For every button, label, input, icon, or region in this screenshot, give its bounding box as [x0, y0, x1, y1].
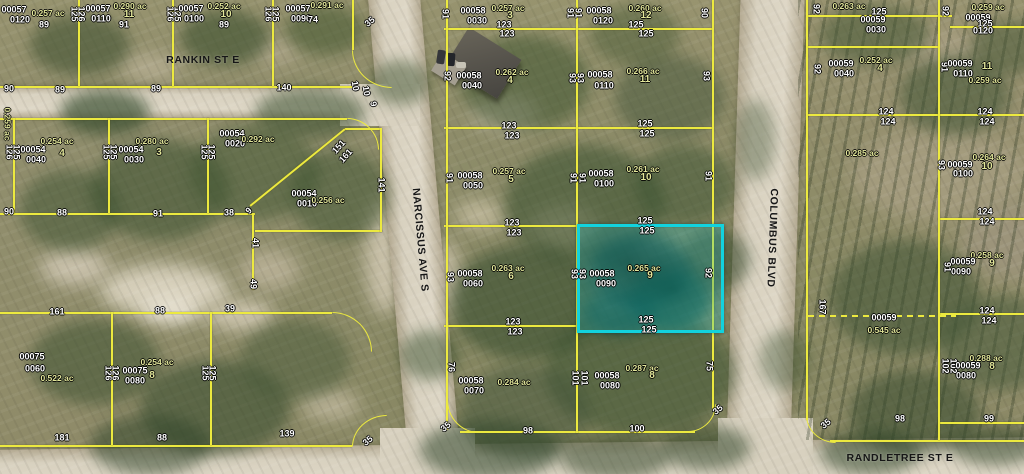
map-labels-layer: 0005701200.257 ac891251260005701100.290 … — [0, 0, 1024, 474]
parcel-id-label: 00058 — [587, 71, 612, 80]
parcel-dimension-label: 124 — [979, 118, 994, 127]
parcel-dimension-label: 9 — [244, 206, 254, 216]
parcel-dimension-label: 167 — [818, 299, 827, 314]
parcel-acreage-label: 0.252 ac — [859, 56, 892, 65]
parcel-acreage-label: 0.259 ac — [3, 107, 12, 140]
parcel-dimension-label: 74 — [308, 16, 318, 25]
street-name-label: NARCISSUS AVE S — [410, 188, 430, 293]
parcel-dimension-label: 92 — [704, 268, 713, 278]
parcel-dimension-label: 124 — [878, 108, 893, 117]
parcel-id-label: 00058 — [588, 170, 613, 179]
parcel-id-label: 00059 — [828, 60, 853, 69]
parcel-dimension-label: 101 — [580, 370, 589, 385]
parcel-id-label: 0030 — [124, 156, 144, 165]
street-name-label: RANKIN ST E — [166, 55, 240, 66]
parcel-id-label: 0080 — [956, 372, 976, 381]
parcel-dimension-label: 93 — [446, 272, 455, 282]
parcel-id-label: 00057 — [178, 5, 203, 14]
parcel-id-label: 0090 — [951, 268, 971, 277]
parcel-acreage-label: 0.256 ac — [311, 196, 344, 205]
parcel-id-label: 00054 — [20, 146, 45, 155]
parcel-acreage-label: 0.522 ac — [40, 374, 73, 383]
parcel-dimension-label: 141 — [377, 177, 386, 192]
parcel-dimension-label: 124 — [981, 317, 996, 326]
parcel-dimension-label: 125 — [639, 130, 654, 139]
parcel-dimension-label: 123 — [501, 122, 516, 131]
lot-number-label: 11 — [982, 62, 993, 72]
lot-number-label: 8 — [149, 371, 155, 381]
parcel-id-label: 0080 — [600, 382, 620, 391]
parcel-dimension-label: 181 — [54, 434, 69, 443]
parcel-id-label: 00058 — [456, 72, 481, 81]
parcel-acreage-label: 0.259 ac — [971, 3, 1004, 12]
parcel-dimension-label: 41 — [251, 238, 260, 248]
parcel-dimension-label: 38 — [224, 209, 234, 218]
parcel-id-label: 00058 — [460, 7, 485, 16]
parcel-dimension-label: 125 — [271, 6, 280, 21]
parcel-dimension-label: 124 — [880, 118, 895, 127]
parcel-dimension-label: 101 — [571, 370, 580, 385]
parcel-dimension-label: 90 — [4, 85, 14, 94]
parcel-dimension-label: 125 — [638, 316, 653, 325]
parcel-dimension-label: 139 — [279, 430, 294, 439]
parcel-id-label: 0110 — [594, 82, 614, 91]
parcel-dimension-label: 89 — [219, 21, 229, 30]
parcel-dimension-label: 125 — [638, 30, 653, 39]
parcel-acreage-label: 0.264 ac — [972, 153, 1005, 162]
parcel-acreage-label: 0.284 ac — [497, 378, 530, 387]
parcel-id-label: 0100 — [953, 170, 973, 179]
parcel-id-label: 00058 — [457, 270, 482, 279]
parcel-dimension-label: 9 — [368, 101, 378, 108]
lot-number-label: 10 — [640, 173, 651, 183]
parcel-id-label: 0120 — [593, 17, 613, 26]
parcel-id-label: 0100 — [184, 15, 204, 24]
parcel-dimension-label: 90 — [4, 208, 14, 217]
parcel-id-label: 00057 — [285, 5, 310, 14]
parcel-map[interactable]: 0005701200.257 ac891251260005701100.290 … — [0, 0, 1024, 474]
parcel-dimension-label: 91 — [704, 171, 713, 181]
lot-number-label: 11 — [640, 75, 651, 85]
parcel-id-label: 00075 — [122, 367, 147, 376]
parcel-acreage-label: 0.257 ac — [31, 9, 64, 18]
parcel-dimension-label: 90 — [700, 8, 709, 18]
lot-number-label: 10 — [981, 162, 992, 172]
parcel-id-label: 00057 — [1, 6, 26, 15]
parcel-acreage-label: 0.259 ac — [968, 76, 1001, 85]
parcel-id-label: 0060 — [463, 280, 483, 289]
parcel-dimension-label: 10 — [361, 85, 372, 96]
parcel-dimension-label: 98 — [523, 427, 533, 436]
parcel-dimension-label: 10 — [350, 80, 361, 91]
parcel-acreage-label: 0.254 ac — [40, 137, 73, 146]
parcel-dimension-label: 125 — [208, 365, 217, 380]
parcel-acreage-label: 0.285 ac — [845, 149, 878, 158]
parcel-id-label: 0030 — [467, 17, 487, 26]
lot-number-label: 9 — [989, 259, 995, 269]
parcel-dimension-label: 123 — [499, 30, 514, 39]
street-name-label: COLUMBUS BLVD — [765, 188, 779, 287]
parcel-dimension-label: 125 — [637, 217, 652, 226]
parcel-dimension-label: 93 — [578, 269, 587, 279]
lot-number-label: 5 — [508, 175, 514, 185]
parcel-id-label: 00058 — [594, 372, 619, 381]
parcel-dimension-label: 126 — [111, 365, 120, 380]
parcel-dimension-label: 123 — [506, 229, 521, 238]
parcel-dimension-label: 92 — [812, 4, 821, 14]
lot-number-label: 6 — [508, 272, 514, 282]
parcel-dimension-label: 91 — [578, 173, 587, 183]
parcel-dimension-label: 124 — [979, 307, 994, 316]
parcel-dimension-label: 39 — [225, 305, 235, 314]
parcel-dimension-label: 88 — [155, 307, 165, 316]
parcel-dimension-label: 92 — [813, 64, 822, 74]
parcel-id-label: 0050 — [463, 182, 483, 191]
parcel-dimension-label: 98 — [895, 415, 905, 424]
parcel-acreage-label: 0.265 ac — [627, 264, 660, 273]
parcel-dimension-label: 123 — [505, 318, 520, 327]
parcel-dimension-label: 91 — [569, 173, 578, 183]
parcel-dimension-label: 124 — [977, 208, 992, 217]
parcel-dimension-label: 93 — [937, 160, 946, 170]
parcel-id-label: 0030 — [866, 26, 886, 35]
parcel-id-label: 0110 — [91, 15, 111, 24]
parcel-dimension-label: 92 — [941, 6, 950, 16]
parcel-dimension-label: 125 — [109, 144, 118, 159]
parcel-id-label: 0100 — [594, 180, 614, 189]
lot-number-label: 10 — [220, 10, 231, 20]
parcel-dimension-label: 93 — [702, 71, 711, 81]
parcel-dimension-label: 140 — [276, 84, 291, 93]
parcel-dimension-label: 91 — [943, 262, 952, 272]
parcel-id-label: 0040 — [26, 156, 46, 165]
lot-number-label: 9 — [647, 271, 653, 281]
lot-number-label: 8 — [649, 371, 655, 381]
parcel-dimension-label: 124 — [977, 108, 992, 117]
parcel-dimension-label: 92 — [443, 71, 452, 81]
parcel-id-label: 00058 — [457, 172, 482, 181]
street-name-label: RANDLETREE ST E — [846, 453, 953, 464]
parcel-dimension-label: 89 — [55, 86, 65, 95]
lot-number-label: 4 — [59, 149, 65, 159]
parcel-dimension-label: 126 — [77, 6, 86, 21]
lot-number-label: 11 — [124, 10, 135, 20]
parcel-id-label: 00058 — [589, 270, 614, 279]
parcel-id-label: 00057 — [85, 5, 110, 14]
parcel-dimension-label: 93 — [576, 73, 585, 83]
parcel-dimension-label: 125 — [12, 144, 21, 159]
parcel-id-label: 00059 — [947, 60, 972, 69]
parcel-dimension-label: 35 — [439, 420, 452, 433]
parcel-acreage-label: 0.280 ac — [135, 137, 168, 146]
parcel-id-label: 00059 — [955, 362, 980, 371]
parcel-dimension-label: 124 — [979, 218, 994, 227]
parcel-id-label: 0080 — [125, 377, 145, 386]
parcel-dimension-label: 91 — [153, 210, 163, 219]
parcel-dimension-label: 99 — [984, 415, 994, 424]
parcel-dimension-label: 125 — [207, 144, 216, 159]
parcel-dimension-label: 35 — [819, 417, 832, 430]
parcel-id-label: 0090 — [596, 280, 616, 289]
parcel-id-label: 0040 — [462, 82, 482, 91]
parcel-dimension-label: 88 — [157, 434, 167, 443]
parcel-dimension-label: 123 — [507, 328, 522, 337]
lot-number-label: 8 — [989, 362, 995, 372]
parcel-id-label: 00058 — [458, 377, 483, 386]
parcel-dimension-label: 35 — [711, 403, 724, 416]
parcel-acreage-label: 0.292 ac — [241, 135, 274, 144]
parcel-id-label: 0070 — [464, 387, 484, 396]
parcel-dimension-label: 89 — [39, 21, 49, 30]
parcel-dimension-label: 76 — [447, 362, 456, 372]
parcel-dimension-label: 91 — [441, 9, 450, 19]
lot-number-label: 4 — [507, 76, 513, 86]
parcel-dimension-label: 75 — [705, 361, 714, 371]
parcel-id-label: 00054 — [118, 146, 143, 155]
lot-number-label: 4 — [877, 64, 883, 74]
parcel-dimension-label: 123 — [504, 132, 519, 141]
parcel-acreage-label: 0.263 ac — [832, 2, 865, 11]
parcel-dimension-label: 91 — [445, 173, 454, 183]
parcel-dimension-label: 35 — [363, 15, 376, 28]
parcel-dimension-label: 91 — [119, 21, 129, 30]
lot-number-label: 3 — [156, 148, 162, 158]
parcel-id-label: 00058 — [586, 7, 611, 16]
parcel-id-label: 0120 — [973, 27, 993, 36]
parcel-dimension-label: 125 — [637, 120, 652, 129]
parcel-dimension-label: 100 — [629, 425, 644, 434]
parcel-dimension-label: 161 — [49, 308, 64, 317]
parcel-id-label: 00059 — [860, 16, 885, 25]
parcel-dimension-label: 49 — [249, 279, 258, 289]
parcel-dimension-label: 89 — [151, 85, 161, 94]
parcel-acreage-label: 0.291 ac — [310, 1, 343, 10]
parcel-dimension-label: 35 — [361, 434, 374, 447]
parcel-dimension-label: 123 — [504, 219, 519, 228]
parcel-dimension-label: 125 — [639, 227, 654, 236]
parcel-id-label: 00075 — [19, 353, 44, 362]
parcel-acreage-label: 0.545 ac — [867, 326, 900, 335]
parcel-dimension-label: 91 — [574, 8, 583, 18]
parcel-dimension-label: 88 — [57, 209, 67, 218]
parcel-id-label: 0120 — [10, 16, 30, 25]
parcel-id-label: 00059 — [950, 258, 975, 267]
parcel-id-label: 0040 — [834, 70, 854, 79]
parcel-id-label: 00059 — [871, 314, 896, 323]
parcel-dimension-label: 125 — [641, 326, 656, 335]
